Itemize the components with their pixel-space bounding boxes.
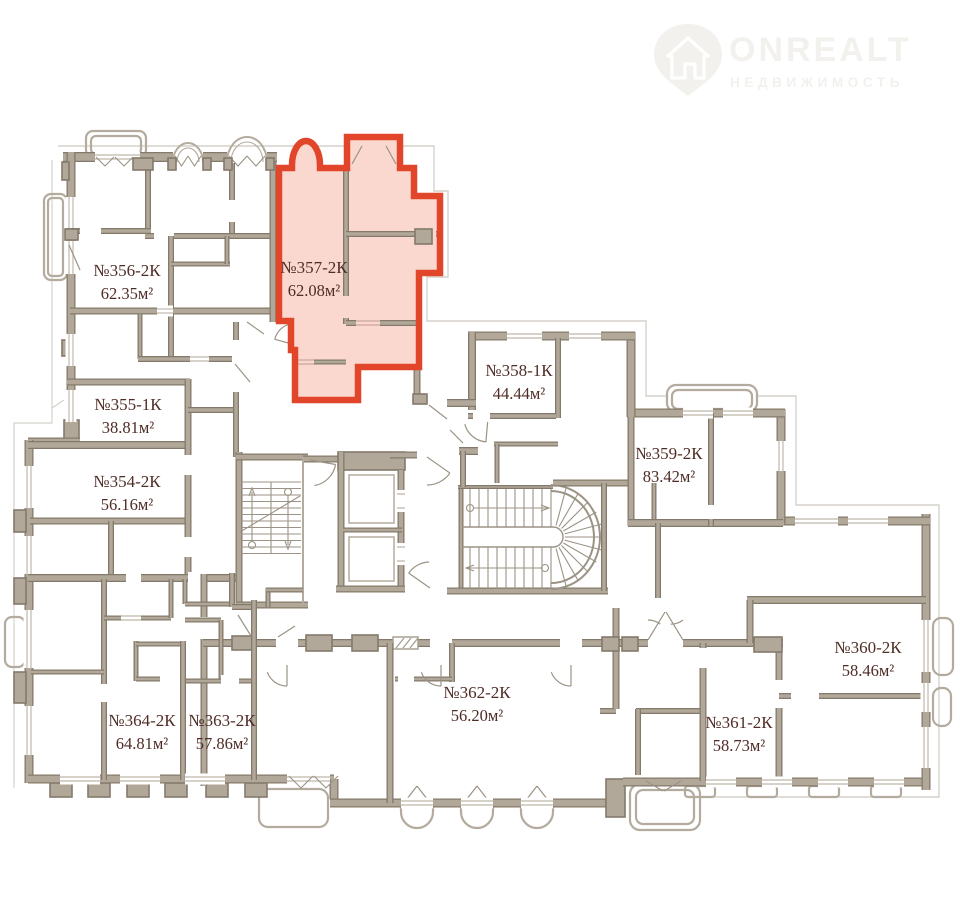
svg-text:№358-1К: №358-1К — [485, 361, 553, 380]
svg-text:62.35м²: 62.35м² — [101, 284, 154, 303]
svg-text:№354-2К: №354-2К — [93, 472, 161, 491]
svg-text:44.44м²: 44.44м² — [493, 384, 546, 403]
svg-text:64.81м²: 64.81м² — [116, 734, 169, 753]
svg-text:№356-2К: №356-2К — [93, 261, 161, 280]
svg-text:83.42м²: 83.42м² — [643, 467, 696, 486]
svg-text:38.81м²: 38.81м² — [102, 418, 155, 437]
svg-text:62.08м²: 62.08м² — [288, 281, 341, 300]
svg-text:№362-2К: №362-2К — [443, 683, 511, 702]
svg-text:58.73м²: 58.73м² — [713, 736, 766, 755]
svg-text:№361-2К: №361-2К — [705, 713, 773, 732]
svg-text:№355-1К: №355-1К — [94, 395, 162, 414]
svg-text:№360-2К: №360-2К — [834, 638, 902, 657]
svg-text:56.16м²: 56.16м² — [101, 495, 154, 514]
svg-text:№359-2К: №359-2К — [635, 444, 703, 463]
svg-text:НЕДВИЖИМОСТЬ: НЕДВИЖИМОСТЬ — [730, 75, 904, 90]
svg-text:№357-2К: №357-2К — [280, 258, 348, 277]
svg-text:56.20м²: 56.20м² — [451, 706, 504, 725]
svg-text:№363-2К: №363-2К — [188, 711, 256, 730]
svg-text:57.86м²: 57.86м² — [196, 734, 249, 753]
svg-text:ONREALT: ONREALT — [729, 31, 912, 69]
svg-text:58.46м²: 58.46м² — [842, 661, 895, 680]
svg-text:№364-2К: №364-2К — [108, 711, 176, 730]
